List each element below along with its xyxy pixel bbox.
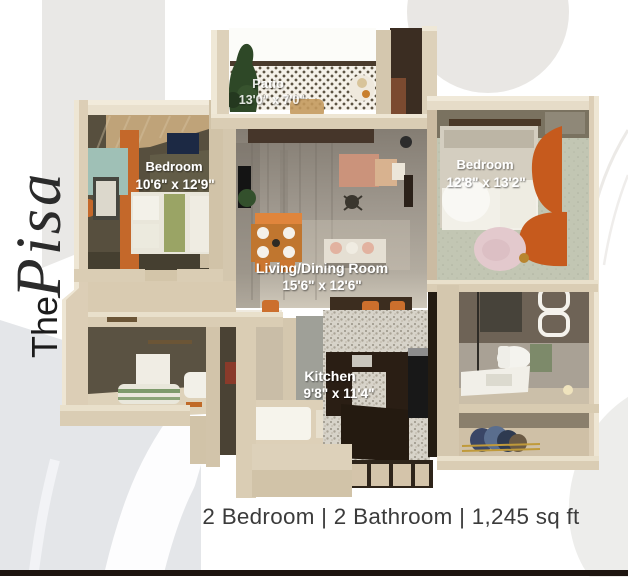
svg-text:12'8" x 13'2": 12'8" x 13'2" <box>446 175 525 190</box>
svg-text:15'6" x 12'6": 15'6" x 12'6" <box>282 278 361 293</box>
svg-text:The: The <box>24 296 65 358</box>
svg-text:Patio: Patio <box>252 76 284 91</box>
svg-text:13'0" x 7'0": 13'0" x 7'0" <box>239 93 306 107</box>
svg-text:Kitchen: Kitchen <box>304 368 355 384</box>
svg-text:Bedroom: Bedroom <box>145 159 202 174</box>
svg-text:2 Bedroom | 2 Bathroom | 1,245: 2 Bedroom | 2 Bathroom | 1,245 sq ft <box>202 504 580 529</box>
svg-text:Living/Dining Room: Living/Dining Room <box>256 260 388 276</box>
svg-text:10'6" x 12'9": 10'6" x 12'9" <box>135 177 214 192</box>
svg-text:9'8" x 11'4": 9'8" x 11'4" <box>303 386 374 401</box>
svg-text:Pisa: Pisa <box>3 170 75 299</box>
svg-text:Bedroom: Bedroom <box>456 157 513 172</box>
